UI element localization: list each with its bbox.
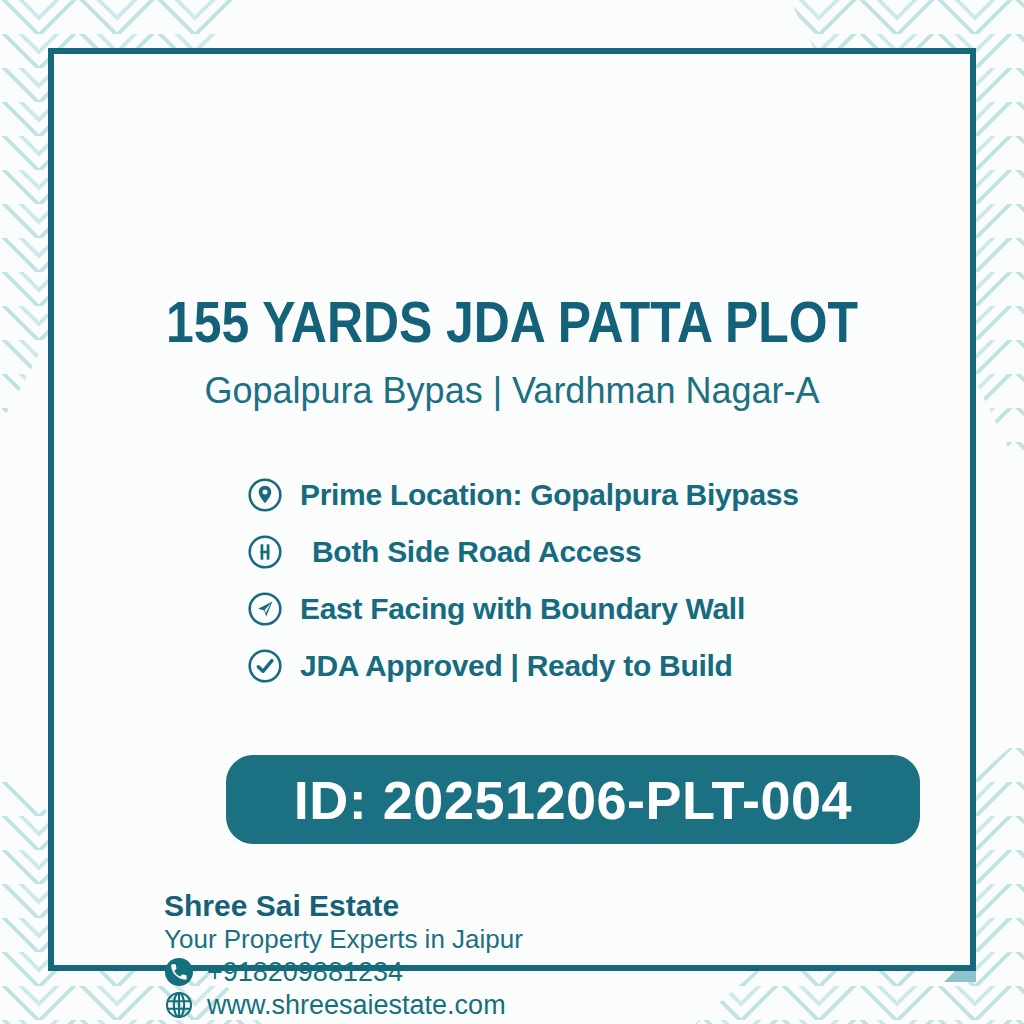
company-tagline: Your Property Experts in Jaipur [164, 924, 523, 954]
compass-icon [247, 591, 283, 627]
listing-id-badge: ID: 20251206-PLT-004 [226, 755, 920, 844]
phone-row: +918209881234 [164, 957, 523, 987]
feature-text: Prime Location: Gopalpura Biypass [300, 478, 799, 512]
phone-icon [164, 957, 194, 987]
website-row: www.shreesaiestate.com [164, 990, 523, 1020]
poster-title: 155 YARDS JDA PATTA PLOT [118, 288, 906, 355]
globe-icon [164, 990, 194, 1020]
road-icon [247, 534, 283, 570]
footer: Shree Sai Estate Your Property Experts i… [164, 890, 523, 1020]
company-name: Shree Sai Estate [164, 890, 523, 922]
feature-text: Both Side Road Access [312, 535, 641, 569]
feature-text: East Facing with Boundary Wall [300, 592, 745, 626]
feature-row-prime-location: Prime Location: Gopalpura Biypass [247, 477, 799, 513]
border-frame: 155 YARDS JDA PATTA PLOT Gopalpura Bypas… [48, 48, 976, 971]
website-url: www.shreesaiestate.com [207, 990, 506, 1021]
feature-row-east-facing: East Facing with Boundary Wall [247, 591, 799, 627]
poster-subtitle: Gopalpura Bypas | Vardhman Nagar-A [54, 370, 970, 412]
feature-text: JDA Approved | Ready to Build [300, 649, 733, 683]
phone-number: +918209881234 [207, 957, 403, 988]
check-icon [247, 648, 283, 684]
location-pin-icon [247, 477, 283, 513]
feature-row-road-access: Both Side Road Access [247, 534, 799, 570]
feature-list: Prime Location: Gopalpura Biypass Both S… [247, 477, 799, 684]
feature-row-jda-approved: JDA Approved | Ready to Build [247, 648, 799, 684]
listing-id-text: ID: 20251206-PLT-004 [294, 769, 852, 831]
